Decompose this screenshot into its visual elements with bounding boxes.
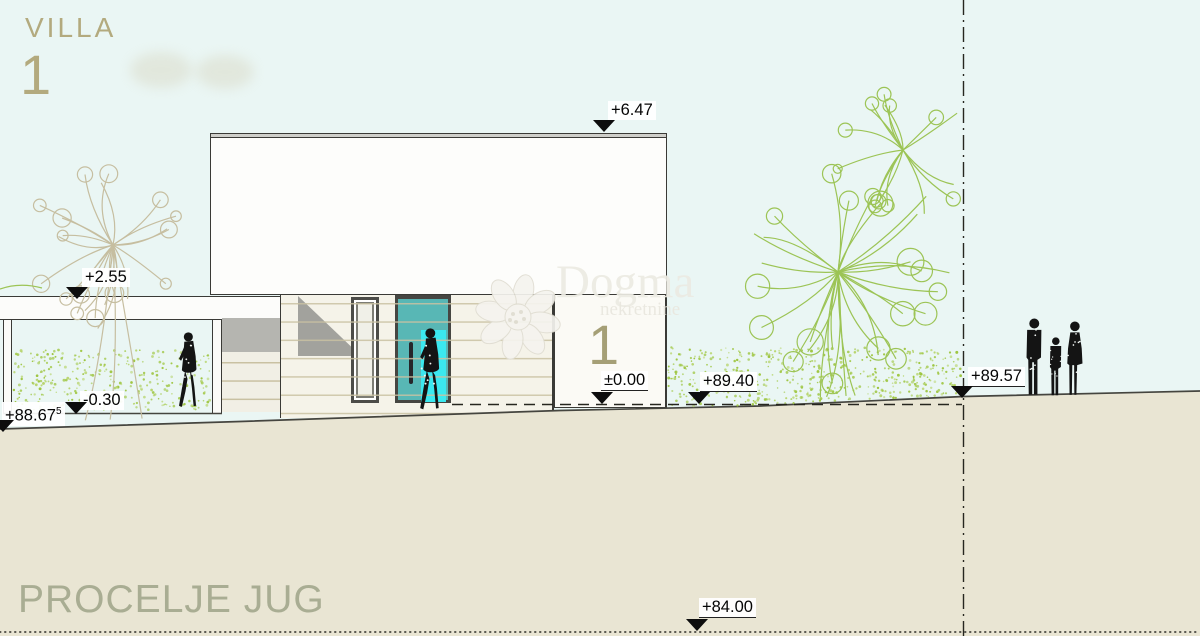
elevation-marker-triangle	[686, 619, 708, 631]
redacted-text-smudge	[130, 52, 192, 88]
plant-allium-large	[746, 165, 950, 398]
recessed-wall	[222, 318, 286, 412]
entrance-door	[395, 295, 451, 403]
project-number: 1	[20, 42, 51, 107]
elevation-marker-triangle	[951, 386, 973, 398]
sheet-title: PROCELJE JUG	[18, 578, 325, 622]
building-number-on-wall: 1	[588, 312, 619, 377]
door-glass	[421, 330, 446, 402]
plant-allium-small	[833, 87, 960, 213]
project-title: VILLA	[25, 12, 116, 44]
plant-allium-left	[33, 165, 182, 421]
elevation-marker-triangle	[591, 392, 613, 404]
recess-shadow-band	[222, 318, 286, 352]
person-left-walking	[179, 332, 196, 407]
canopy-column-left	[3, 320, 12, 414]
elevation-marker-triangle	[66, 287, 88, 299]
person-woman	[1067, 322, 1082, 395]
elevation-marker-triangle	[593, 120, 615, 132]
window-pane	[356, 302, 374, 398]
door-handle-icon	[409, 342, 413, 384]
redacted-text-smudge	[196, 55, 254, 89]
person-man	[1027, 319, 1042, 395]
elevation-marker-triangle	[65, 402, 87, 414]
grass-sprig	[0, 285, 42, 289]
carport-canopy-roof	[0, 296, 281, 320]
elevation-marker-triangle	[0, 420, 14, 432]
recess-cladding	[222, 352, 286, 412]
narrow-window	[351, 297, 379, 403]
elevation-marker-triangle	[688, 392, 710, 404]
roof-fascia	[211, 134, 666, 138]
canopy-column-right	[212, 320, 222, 414]
elevation-drawing-sheet: 1 Dogma nekretnine +6.47 +2.55 -0.30 +88…	[0, 0, 1200, 636]
dogma-flower-icon	[468, 267, 568, 367]
person-child	[1050, 337, 1062, 395]
